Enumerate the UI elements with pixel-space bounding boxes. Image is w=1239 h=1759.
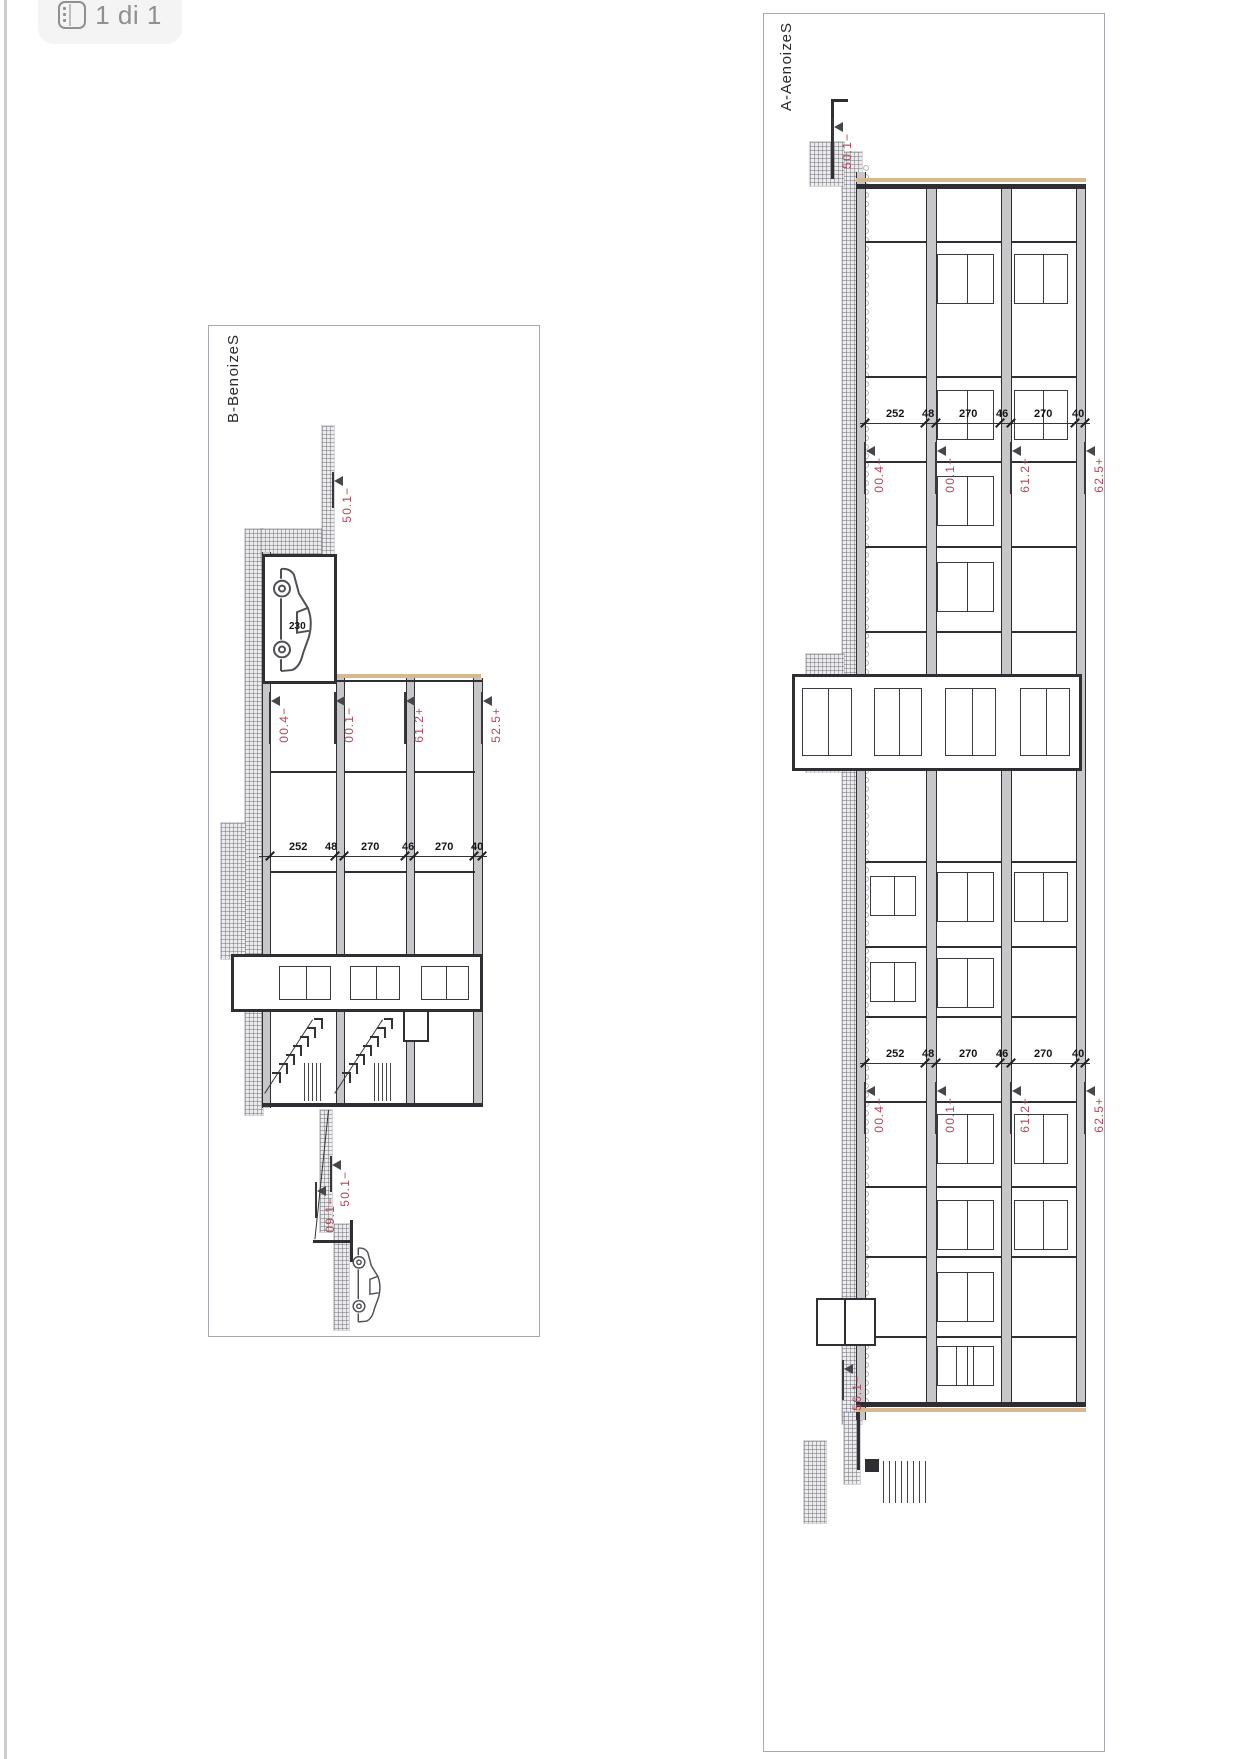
- door-window-section: [1014, 872, 1068, 922]
- dimension-chain-line: [259, 856, 487, 857]
- elevation-label: +5.26: [1093, 457, 1105, 492]
- glyph: 2: [413, 715, 425, 723]
- interior-wall: [866, 241, 926, 243]
- glyph: 2: [1019, 465, 1031, 473]
- glyph: n: [226, 377, 241, 386]
- glyph: 2: [1019, 1105, 1031, 1113]
- interior-wall: [937, 546, 1001, 548]
- glyph: 1: [944, 465, 956, 473]
- glyph: 0: [341, 507, 353, 515]
- railing-line: [320, 1063, 321, 1101]
- glyph: 0: [873, 485, 885, 493]
- door-window-section: [421, 966, 469, 1000]
- glyph: B: [226, 412, 241, 423]
- wall-line: [415, 771, 475, 773]
- door-midrail: [967, 255, 968, 303]
- wall-line: [415, 871, 475, 873]
- car-icon: [351, 1246, 383, 1324]
- ground-hatch: [221, 823, 245, 959]
- door-midrail: [446, 967, 447, 999]
- interior-wall: [937, 241, 1001, 243]
- dimension-text: 230: [289, 622, 306, 632]
- stair-slope-line: [264, 1019, 313, 1093]
- interior-wall: [866, 546, 926, 548]
- floor-slab: [1076, 184, 1086, 1406]
- elevation-triangle-icon: [332, 1160, 341, 1170]
- glyph: 1: [343, 715, 355, 723]
- elevation-label: −4.00: [873, 1097, 885, 1132]
- panel-title: Sezione A-A: [779, 22, 794, 111]
- interior-wall: [1012, 1186, 1076, 1188]
- door-window-section: [279, 966, 331, 1000]
- glyph: 0: [944, 1125, 956, 1133]
- section-panel-bb: Sezione B-B230252482704627040−4.00−1.00+…: [208, 325, 540, 1337]
- glyph: −: [841, 133, 853, 141]
- door-window-section: [350, 966, 400, 1000]
- glyph: +: [490, 707, 502, 715]
- dimension-text: 40: [1072, 1049, 1084, 1060]
- door-midrail: [1043, 255, 1044, 303]
- glyph: 0: [324, 1225, 336, 1233]
- glyph: +: [1093, 457, 1105, 465]
- elevation-triangle-icon: [866, 1086, 875, 1096]
- interior-wall: [866, 946, 926, 948]
- glyph: 0: [841, 153, 853, 161]
- elevation-label: −1.05: [339, 1171, 351, 1206]
- interior-wall: [1012, 1016, 1076, 1018]
- dimension-chain-line: [860, 1063, 1090, 1064]
- railing-line: [390, 1063, 391, 1101]
- dimension-text: 270: [435, 842, 453, 853]
- glyph: A: [779, 83, 794, 94]
- glyph: o: [779, 55, 794, 64]
- glyph: 5: [490, 735, 502, 743]
- glyph: 0: [278, 727, 290, 735]
- ground-hatch: [810, 142, 844, 186]
- glyph: 6: [413, 735, 425, 743]
- railing-line: [386, 1063, 387, 1101]
- door-window-section: [870, 876, 916, 916]
- door-midrail: [972, 689, 973, 755]
- glyph: e: [226, 345, 241, 354]
- glyph: −: [343, 707, 355, 715]
- interior-wall: [937, 946, 1001, 948]
- glyph: 6: [1093, 1125, 1105, 1133]
- glyph: −: [944, 1097, 956, 1105]
- railing-line: [312, 1063, 313, 1101]
- facade-finish-line: [856, 1408, 1086, 1412]
- page-indicator-pill[interactable]: 1 di 1: [38, 0, 182, 44]
- glyph: e: [779, 33, 794, 42]
- glyph: −: [873, 457, 885, 465]
- wall-line: [271, 871, 336, 873]
- wall-line: [313, 1240, 351, 1243]
- page-edge-line: [4, 0, 7, 1759]
- panel-title: Sezione B-B: [226, 334, 241, 423]
- elevation-triangle-icon: [1086, 446, 1095, 456]
- glyph: 0: [944, 477, 956, 485]
- door-window-section: [1014, 1200, 1068, 1250]
- glyph: 0: [343, 735, 355, 743]
- elevation-label: −4.00: [278, 707, 290, 742]
- glyph: 0: [873, 477, 885, 485]
- railing-line: [382, 1063, 383, 1101]
- glyph: −: [851, 1375, 863, 1383]
- railing-line: [378, 1063, 379, 1101]
- glyph: 9: [324, 1217, 336, 1225]
- elevation-triangle-icon: [1012, 1086, 1021, 1096]
- door-window-section: [937, 872, 994, 922]
- door-midrail: [956, 1347, 957, 1385]
- glyph: −: [341, 487, 353, 495]
- dimension-text: 270: [1034, 409, 1052, 420]
- railing-line: [895, 1461, 896, 1503]
- wall-outline: [403, 1010, 429, 1042]
- glyph: 1: [324, 1205, 336, 1213]
- dimension-text: 270: [959, 409, 977, 420]
- dimension-chain-line: [860, 423, 1090, 424]
- elevation-label: −1.00: [944, 1097, 956, 1132]
- glyph: 0: [873, 1125, 885, 1133]
- glyph: 0: [339, 1191, 351, 1199]
- wall-line: [832, 99, 848, 102]
- door-window-section: [945, 688, 996, 756]
- door-midrail: [307, 967, 308, 999]
- elevation-label: +2.16: [1019, 1097, 1031, 1132]
- dimension-text: 252: [886, 409, 904, 420]
- railing-line: [304, 1063, 305, 1101]
- door-midrail: [967, 1273, 968, 1321]
- elevation-label: +5.25: [490, 707, 502, 742]
- wall-line: [345, 771, 406, 773]
- facade-finish-line: [337, 674, 481, 678]
- door-window-section: [937, 958, 994, 1008]
- wall-line: [262, 1103, 483, 1107]
- interior-wall: [937, 1256, 1001, 1258]
- glyph: −: [944, 457, 956, 465]
- door-midrail: [1043, 873, 1044, 921]
- elevation-label: −4.00: [873, 457, 885, 492]
- elevation-label: −1.00: [343, 707, 355, 742]
- glyph: A: [779, 100, 794, 111]
- door-midrail: [967, 1115, 968, 1163]
- elevation-label: +2.16: [413, 707, 425, 742]
- interior-wall: [937, 1186, 1001, 1188]
- railing-line: [907, 1461, 908, 1503]
- dimension-text: 270: [361, 842, 379, 853]
- interior-wall: [1012, 1336, 1076, 1338]
- dimension-text: 270: [959, 1049, 977, 1060]
- elevation-label: +5.26: [1093, 1097, 1105, 1132]
- dimension-text: 46: [996, 409, 1008, 420]
- elevation-triangle-icon: [1086, 1086, 1095, 1096]
- glyph: +: [1019, 1097, 1031, 1105]
- car-icon: [271, 566, 315, 674]
- railing-line: [308, 1063, 309, 1101]
- interior-wall: [1012, 1256, 1076, 1258]
- door-window-section: [936, 1346, 974, 1386]
- glyph: 6: [851, 1395, 863, 1403]
- dimension-text: 270: [1034, 1049, 1052, 1060]
- door-window-section: [937, 562, 994, 612]
- glyph: 2: [1093, 1117, 1105, 1125]
- interior-wall: [866, 861, 926, 863]
- glyph: o: [226, 367, 241, 376]
- wall-line: [337, 680, 483, 682]
- dimension-text: 40: [1072, 409, 1084, 420]
- glyph: 2: [490, 727, 502, 735]
- interior-wall: [1012, 376, 1076, 378]
- elevation-label: −1.00: [944, 457, 956, 492]
- elevation-triangle-icon: [483, 696, 492, 706]
- glyph: 1: [413, 727, 425, 735]
- glyph: 6: [1093, 485, 1105, 493]
- door-midrail: [1046, 689, 1047, 755]
- railing-line: [374, 1063, 375, 1101]
- pdf-viewer-screen: 1 di 1 Sezione B-B230252482704627040−4.0…: [0, 0, 1239, 1759]
- door-midrail: [828, 689, 829, 755]
- glyph: 0: [278, 735, 290, 743]
- glyph: −: [873, 1097, 885, 1105]
- interior-wall: [866, 376, 926, 378]
- elevation-triangle-icon: [406, 696, 415, 706]
- door-window-section: [802, 688, 852, 756]
- interior-wall: [1012, 631, 1076, 633]
- wall-line: [271, 771, 336, 773]
- glyph: e: [779, 74, 794, 83]
- pages-icon: [58, 1, 86, 29]
- glyph: 6: [1019, 485, 1031, 493]
- interior-wall: [937, 1336, 1001, 1338]
- glyph: 2: [1093, 477, 1105, 485]
- glyph: z: [226, 354, 241, 363]
- glyph: 1: [1019, 1117, 1031, 1125]
- elevation-triangle-icon: [271, 696, 280, 706]
- elevation-label: −1.05: [841, 133, 853, 168]
- door-midrail: [967, 959, 968, 1007]
- floor-slab: [856, 172, 866, 1420]
- door-midrail: [967, 563, 968, 611]
- page-indicator-label: 1 di 1: [95, 0, 162, 31]
- door-midrail: [894, 963, 895, 1001]
- glyph: 5: [1093, 1105, 1105, 1113]
- dimension-text: 48: [922, 409, 934, 420]
- interior-wall: [937, 1016, 1001, 1018]
- glyph: −: [324, 1197, 336, 1205]
- railing-line: [919, 1461, 920, 1503]
- glyph: 5: [841, 161, 853, 169]
- wall-line: [845, 1298, 847, 1346]
- door-window-section: [874, 688, 922, 756]
- interior-wall: [866, 1016, 926, 1018]
- door-window-section: [937, 1200, 994, 1250]
- glyph: 4: [278, 715, 290, 723]
- dimension-text: 252: [289, 842, 307, 853]
- glyph: 5: [851, 1403, 863, 1411]
- glyph: +: [1093, 1097, 1105, 1105]
- glyph: 5: [339, 1199, 351, 1207]
- section-panel-aa: Sezione A-A25248270462704025248270462704…: [763, 13, 1105, 1752]
- elevation-label: −1.90: [324, 1197, 336, 1232]
- glyph: z: [779, 42, 794, 51]
- dimension-text: 252: [886, 1049, 904, 1060]
- glyph: 6: [1019, 1125, 1031, 1133]
- dimension-text: 48: [922, 1049, 934, 1060]
- glyph: 0: [343, 727, 355, 735]
- glyph: −: [339, 1171, 351, 1179]
- glyph: +: [1019, 457, 1031, 465]
- glyph: 4: [873, 465, 885, 473]
- elevation-triangle-icon: [844, 1364, 853, 1374]
- door-midrail: [376, 967, 377, 999]
- interior-wall: [1012, 861, 1076, 863]
- elevation-label: −1.05: [341, 487, 353, 522]
- floor-slab: [926, 184, 937, 1406]
- interior-wall: [1012, 241, 1076, 243]
- elevation-triangle-icon: [336, 696, 345, 706]
- wall-line: [857, 1412, 860, 1470]
- wall-outline: [865, 1459, 879, 1472]
- glyph: B: [226, 395, 241, 406]
- ground-hatch: [804, 1441, 826, 1523]
- dimension-text: 40: [471, 842, 483, 853]
- glyph: n: [779, 65, 794, 74]
- glyph: 1: [851, 1383, 863, 1391]
- dimension-text: 46: [402, 842, 414, 853]
- glyph: 0: [944, 485, 956, 493]
- elevation-triangle-icon: [866, 446, 875, 456]
- glyph: +: [413, 707, 425, 715]
- elevation-triangle-icon: [937, 1086, 946, 1096]
- door-midrail: [1043, 1201, 1044, 1249]
- glyph: S: [226, 334, 241, 345]
- glyph: −: [278, 707, 290, 715]
- wall-line: [856, 1402, 1086, 1407]
- elevation-triangle-icon: [334, 476, 343, 486]
- interior-wall: [1012, 946, 1076, 948]
- railing-line: [316, 1063, 317, 1101]
- railing-line: [889, 1461, 890, 1503]
- glyph: 5: [1093, 465, 1105, 473]
- glyph: 1: [339, 1179, 351, 1187]
- glyph: 1: [841, 141, 853, 149]
- glyph: 1: [1019, 477, 1031, 485]
- door-window-section: [870, 962, 916, 1002]
- interior-wall: [866, 1186, 926, 1188]
- interior-wall: [937, 631, 1001, 633]
- railing-line: [913, 1461, 914, 1503]
- glyph: 5: [490, 715, 502, 723]
- door-midrail: [967, 1201, 968, 1249]
- dimension-text: 48: [325, 842, 337, 853]
- floor-slab: [1001, 184, 1012, 1406]
- glyph: 0: [944, 1117, 956, 1125]
- glyph: 5: [341, 515, 353, 523]
- interior-wall: [937, 861, 1001, 863]
- elevation-label: +2.16: [1019, 457, 1031, 492]
- door-midrail: [967, 873, 968, 921]
- dimension-text: 46: [996, 1049, 1008, 1060]
- interior-wall: [937, 376, 1001, 378]
- door-midrail: [967, 477, 968, 525]
- glyph: 1: [944, 1105, 956, 1113]
- glyph: 1: [341, 495, 353, 503]
- elevation-triangle-icon: [834, 122, 843, 132]
- elevation-label: −1.65: [851, 1375, 863, 1410]
- facade-finish-line: [856, 178, 1086, 182]
- wall-line: [345, 871, 406, 873]
- elevation-triangle-icon: [1012, 446, 1021, 456]
- glyph: e: [226, 386, 241, 395]
- drawing-bb: Sezione B-B230252482704627040−4.00−1.00+…: [209, 326, 541, 1338]
- door-window-section: [937, 254, 994, 304]
- railing-line: [883, 1461, 884, 1503]
- door-window-section: [1014, 254, 1068, 304]
- door-midrail: [894, 877, 895, 915]
- railing-line: [925, 1461, 926, 1503]
- interior-wall: [866, 631, 926, 633]
- door-midrail: [1043, 1115, 1044, 1163]
- door-midrail: [899, 689, 900, 755]
- elevation-triangle-icon: [937, 446, 946, 456]
- interior-wall: [866, 1256, 926, 1258]
- wall-outline: [816, 1298, 876, 1346]
- railing-line: [901, 1461, 902, 1503]
- ground-hatch: [245, 529, 263, 1115]
- drawing-aa: Sezione A-A25248270462704025248270462704…: [764, 14, 1106, 1753]
- door-window-section: [1020, 688, 1070, 756]
- door-window-section: [937, 1272, 994, 1322]
- interior-wall: [1012, 546, 1076, 548]
- wall-line: [856, 184, 1086, 189]
- glyph: 0: [873, 1117, 885, 1125]
- glyph: 4: [873, 1105, 885, 1113]
- glyph: S: [779, 22, 794, 33]
